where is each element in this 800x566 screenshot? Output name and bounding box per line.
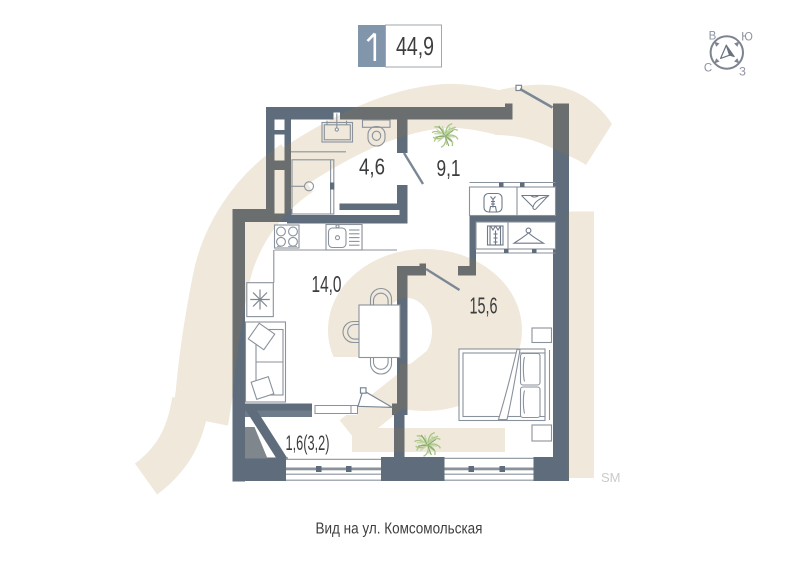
svg-text:Вид на ул. Комсомольская: Вид на ул. Комсомольская (316, 521, 483, 538)
svg-text:В: В (709, 31, 717, 43)
svg-text:SM: SM (601, 470, 621, 485)
svg-text:З: З (739, 67, 746, 79)
svg-text:С: С (704, 63, 712, 75)
svg-text:1,6(3,2): 1,6(3,2) (286, 432, 330, 455)
svg-text:9,1: 9,1 (437, 155, 461, 181)
svg-text:44,9: 44,9 (396, 31, 434, 61)
svg-text:15,6: 15,6 (470, 293, 498, 319)
svg-text:14,0: 14,0 (312, 271, 342, 297)
svg-text:Ю: Ю (741, 32, 753, 44)
svg-text:4,6: 4,6 (359, 154, 385, 180)
